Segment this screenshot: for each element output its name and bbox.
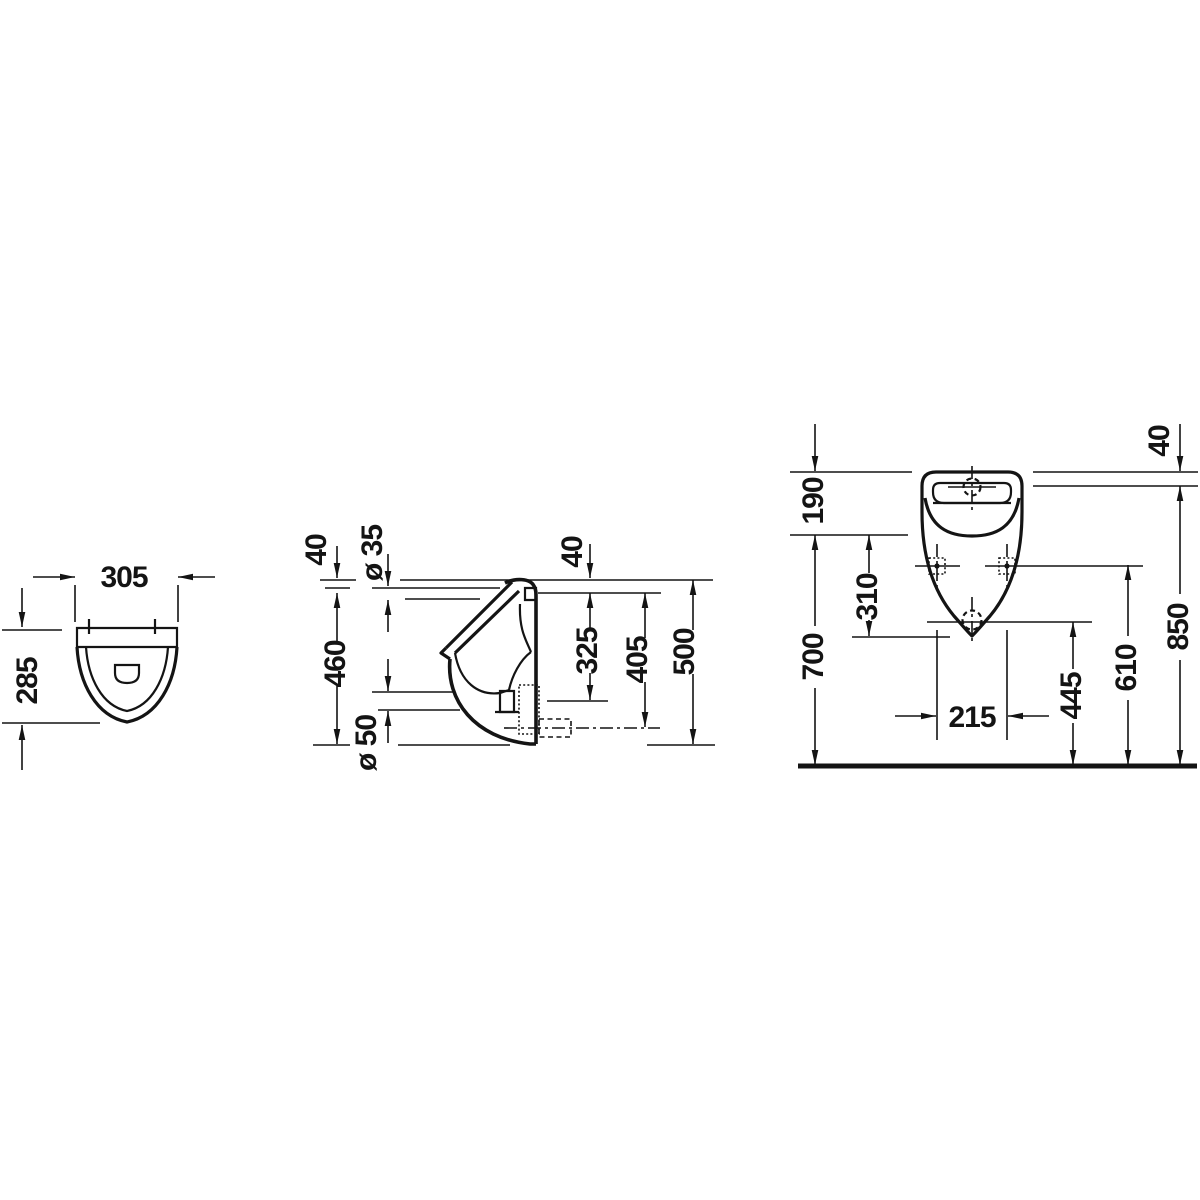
dim-side-rim-to-inlet-right: 40 [556, 536, 589, 568]
dim-front-top-to-rim: 190 [797, 477, 830, 524]
dim-side-drain-diameter: ø 50 [350, 715, 383, 771]
dim-front-fixing-spacing: 215 [948, 701, 995, 734]
dim-side-inlet-to-outlet: 405 [621, 636, 654, 683]
dim-front-floor-to-inlet: 850 [1162, 603, 1195, 650]
dim-front-floor-to-fixing: 610 [1110, 644, 1143, 691]
dim-top-depth: 285 [11, 657, 44, 704]
dim-front-floor-to-rim: 700 [797, 633, 830, 680]
dim-front-floor-to-outlet: 445 [1055, 672, 1088, 719]
technical-drawing-canvas: 305 285 40 460 [0, 0, 1200, 1200]
drawing-background [0, 0, 1200, 1200]
dim-side-inlet-to-bottom: 460 [319, 640, 352, 687]
dim-top-width: 305 [100, 561, 147, 594]
dim-side-total-height: 500 [668, 628, 701, 675]
fixing-hole-center-dot [1004, 563, 1009, 568]
dim-front-rim-to-tip: 310 [851, 573, 884, 620]
fixing-hole-center-dot [934, 563, 939, 568]
dim-side-rim-to-inlet: 40 [300, 534, 333, 566]
dim-side-inlet-diameter: ø 35 [356, 525, 389, 581]
dim-front-top-to-inlet: 40 [1143, 425, 1176, 457]
dim-side-inlet-to-drain: 325 [571, 627, 604, 674]
